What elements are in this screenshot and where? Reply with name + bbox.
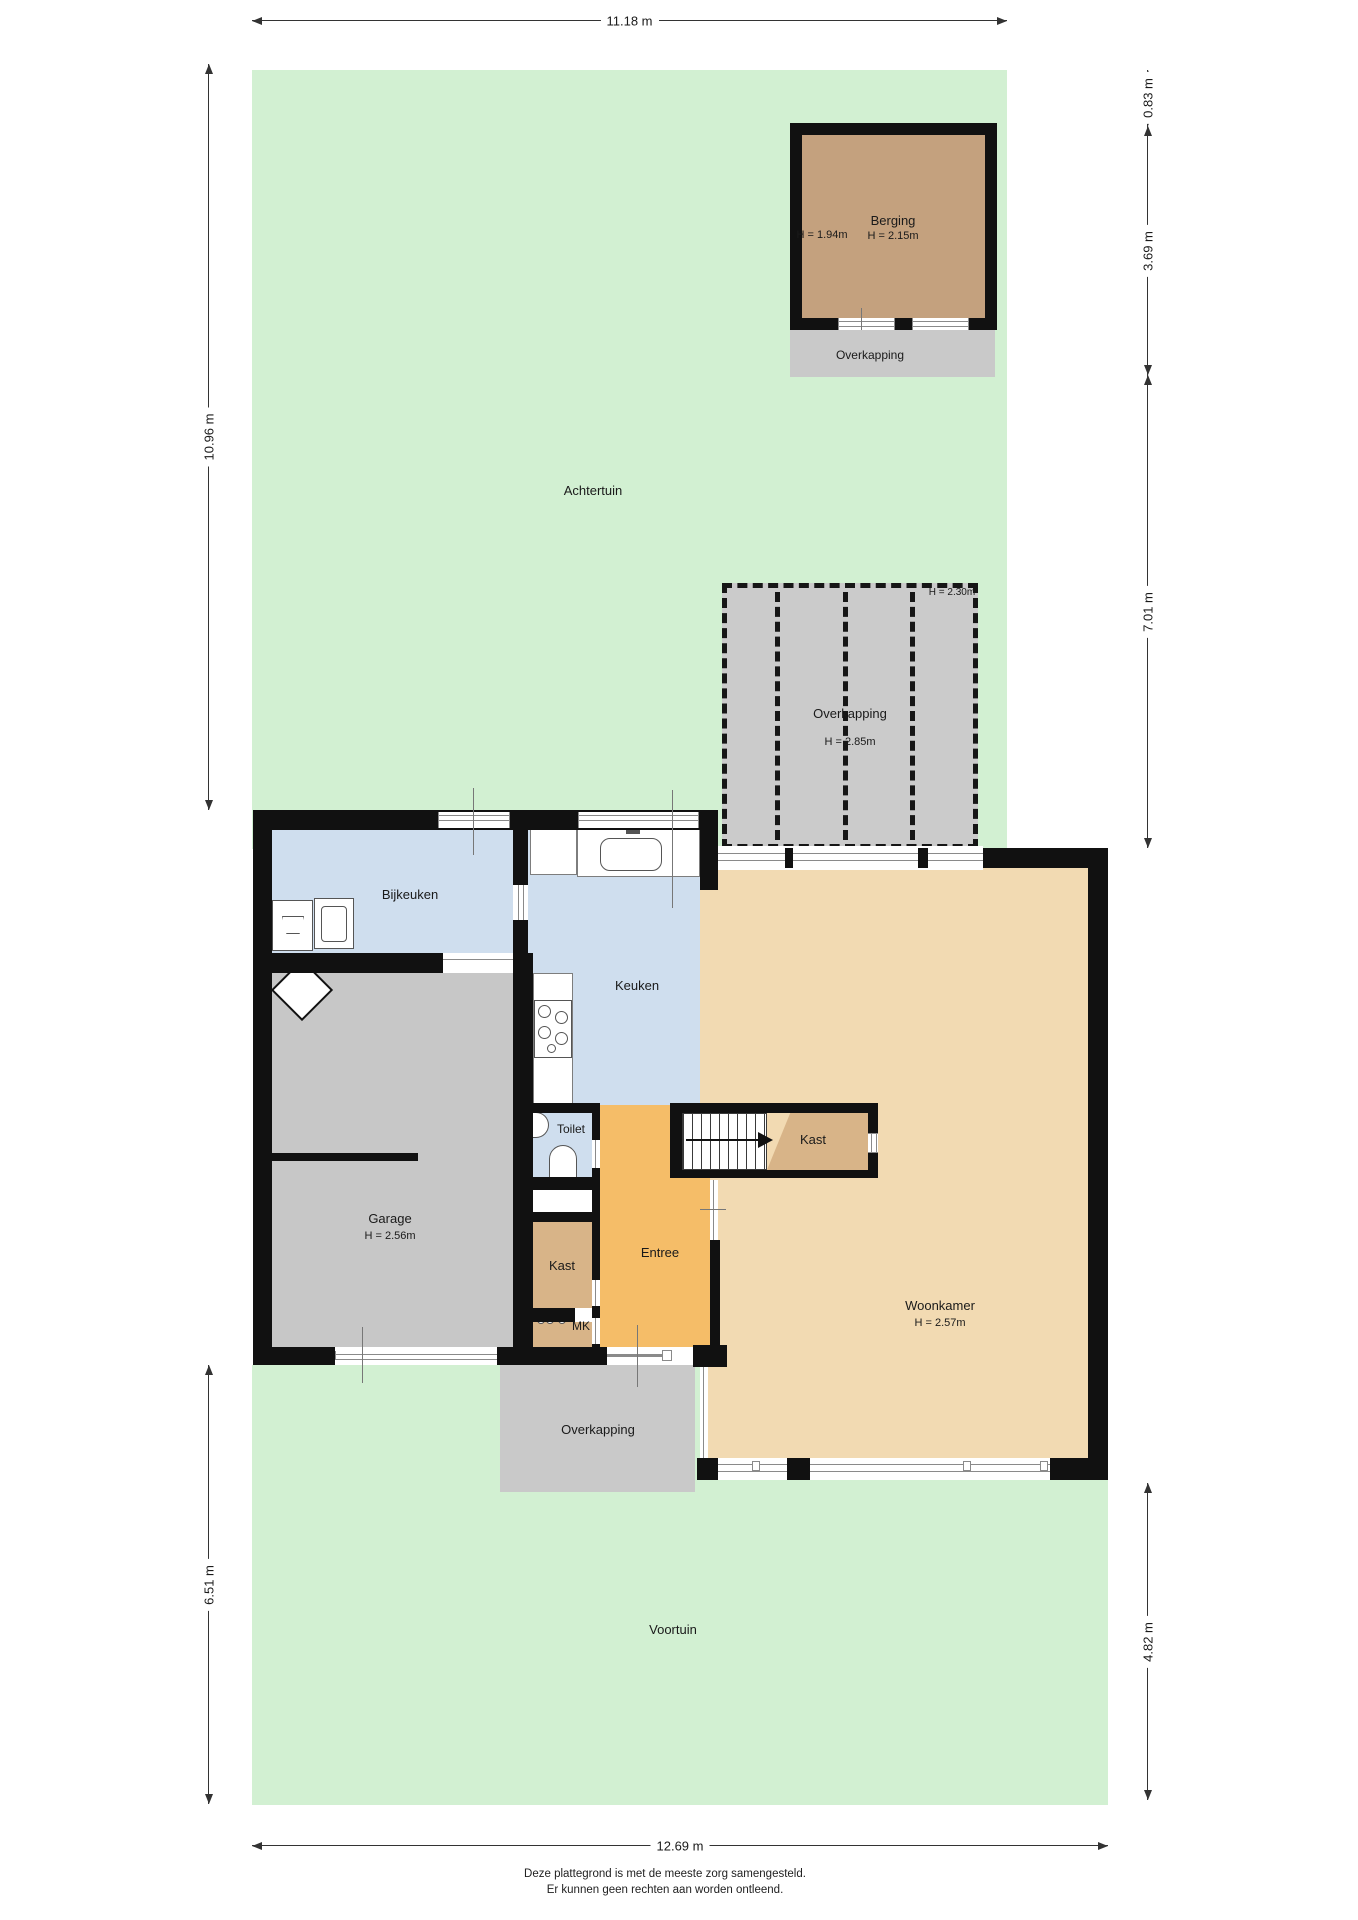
- wall-below-niche: [533, 1212, 600, 1222]
- dimension-bottom: 12.69 m: [252, 1839, 1108, 1853]
- garage-label: Garage: [340, 1211, 440, 1226]
- entree-label: Entree: [610, 1245, 710, 1260]
- sliding-door-post-1: [785, 848, 793, 868]
- bijkeuken-keuken-doorway: [513, 885, 528, 920]
- achtertuin-label: Achtertuin: [523, 483, 663, 498]
- dimension-right-3: 7.01 m: [1141, 375, 1155, 848]
- dimension-right-3-label: 7.01 m: [1141, 586, 1156, 638]
- window-tick: [672, 790, 673, 908]
- voortuin-label: Voortuin: [603, 1622, 743, 1637]
- woonkamer-south-glass: [718, 1458, 1050, 1480]
- garage-height-label: H = 2.56m: [340, 1230, 440, 1243]
- pergola-height-label: H = 2.85m: [780, 736, 920, 749]
- wall-west: [253, 810, 272, 1365]
- porch-post-mid: [787, 1458, 810, 1480]
- wall-toilet-north: [513, 1103, 600, 1113]
- kast-hal-door: [592, 1280, 600, 1306]
- wall-bijkeuken-keuken: [513, 810, 528, 885]
- wall-east: [1088, 848, 1108, 1480]
- glass-mullion: [752, 1461, 760, 1471]
- stove-burner-icon: [538, 1026, 551, 1039]
- wall-south-post: [693, 1345, 727, 1367]
- wall-stairs-south: [670, 1170, 878, 1178]
- pergola-label: Overkapping: [780, 706, 920, 721]
- glass-mullion: [1040, 1461, 1048, 1471]
- dimension-right-1: 0.83 m: [1141, 70, 1155, 126]
- dimension-right-2-label: 3.69 m: [1141, 225, 1156, 277]
- bijkeuken-window: [438, 812, 510, 828]
- pergola-height-corner-label: H = 2.30m: [912, 587, 992, 599]
- kast-hal-label: Kast: [512, 1258, 612, 1273]
- keuken-label: Keuken: [587, 978, 687, 993]
- wall-south-garage-a: [253, 1347, 335, 1365]
- stove-burner-icon: [538, 1005, 551, 1018]
- toilet-door: [592, 1140, 600, 1168]
- dimension-bottom-label: 12.69 m: [651, 1839, 710, 1854]
- woonkamer-label: Woonkamer: [865, 1298, 1015, 1313]
- wall-stairs-north: [670, 1103, 878, 1113]
- sliding-door-post-2: [918, 848, 928, 868]
- glass-mullion: [963, 1461, 971, 1471]
- mk-label: MK: [556, 1319, 606, 1334]
- berging-window-1: [838, 318, 895, 330]
- wall-toilet-south: [533, 1177, 600, 1190]
- footer-disclaimer-line1: Deze plattegrond is met de meeste zorg s…: [365, 1868, 965, 1880]
- garage-door: [335, 1351, 499, 1360]
- dimension-top: 11.18 m: [252, 14, 1007, 28]
- dimension-left-lower: 6.51 m: [202, 1365, 216, 1804]
- woonkamer-height-label: H = 2.57m: [865, 1317, 1015, 1330]
- stove-knob-icon: [547, 1044, 556, 1053]
- kast-trap-window: [868, 1133, 878, 1153]
- overkapping-voor-label: Overkapping: [523, 1422, 673, 1437]
- dimension-right-4: 4.82 m: [1141, 1483, 1155, 1800]
- wall-north-corner: [700, 810, 718, 890]
- floorplan-canvas: Achtertuin Voortuin Berging H = 2.15m H …: [0, 0, 1358, 1920]
- entree-floor-upper: [600, 1105, 670, 1178]
- dryer-door-icon: [321, 906, 347, 942]
- wall-entree-east: [710, 1240, 720, 1347]
- dimension-right-2: 3.69 m: [1141, 126, 1155, 375]
- staircase: [682, 1113, 767, 1170]
- dimension-left-lower-label: 6.51 m: [202, 1559, 217, 1611]
- wall-south-mid: [497, 1347, 607, 1365]
- wetcell-niche: [533, 1190, 592, 1212]
- dimension-left-upper-label: 10.96 m: [202, 408, 217, 467]
- toilet-label: Toilet: [521, 1122, 621, 1137]
- window-tick: [473, 788, 474, 855]
- stairs-direction-line: [686, 1139, 760, 1141]
- garage-door-tick: [362, 1327, 363, 1383]
- sliding-door-strip: [718, 846, 983, 870]
- bijkeuken-label: Bijkeuken: [360, 887, 460, 902]
- berging-label: Berging: [843, 213, 943, 228]
- door-tick: [700, 1209, 726, 1210]
- porch-post-west: [697, 1458, 718, 1480]
- wall-garage-partition: [272, 1153, 418, 1161]
- dimension-right-1-label: 0.83 m: [1141, 72, 1156, 124]
- front-door-tick: [637, 1325, 638, 1387]
- wall-stairs-west: [670, 1103, 682, 1178]
- wall-garage-east: [513, 953, 533, 1365]
- dimension-top-label: 11.18 m: [600, 14, 658, 29]
- overkapping-top-label: Overkapping: [810, 348, 930, 363]
- entree-floor-lower: [600, 1178, 710, 1347]
- front-door-leaf: [607, 1354, 662, 1357]
- kitchen-sink-icon: [600, 838, 662, 871]
- stove-burner-icon: [555, 1011, 568, 1024]
- keuken-window: [578, 812, 699, 828]
- kitchen-cabinet-corner: [530, 828, 577, 875]
- bijkeuken-garage-doorway: [443, 957, 513, 964]
- porch-corner-east: [1050, 1458, 1108, 1480]
- wall-bijkeuken-garage: [272, 953, 443, 973]
- kast-trap-label: Kast: [763, 1132, 863, 1147]
- front-door-jamb: [662, 1350, 672, 1361]
- dimension-right-4-label: 4.82 m: [1141, 1616, 1156, 1668]
- stove-burner-icon: [555, 1032, 568, 1045]
- entree-woonkamer-door: [710, 1180, 718, 1240]
- dimension-left-upper: 10.96 m: [202, 64, 216, 810]
- footer-disclaimer-line2: Er kunnen geen rechten aan worden ontlee…: [365, 1884, 965, 1896]
- berging-height-left-label: H = 1.94m: [772, 229, 872, 242]
- berging-window-2: [912, 318, 969, 330]
- front-glass-panel: [700, 1367, 708, 1458]
- toilet-bowl-icon: [549, 1145, 577, 1181]
